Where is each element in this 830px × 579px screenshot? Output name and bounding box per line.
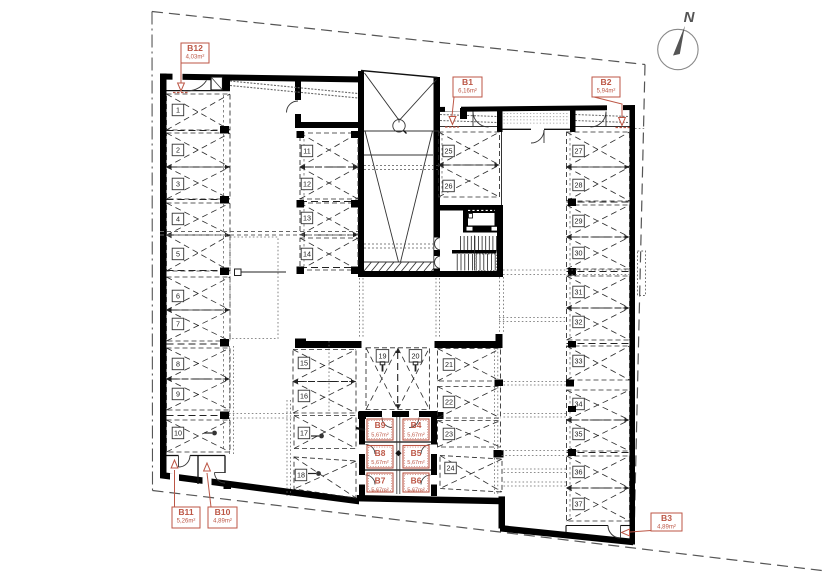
svg-text:3: 3: [176, 180, 180, 189]
svg-text:16: 16: [300, 392, 308, 401]
svg-text:4,89m²: 4,89m²: [657, 525, 676, 531]
svg-text:5,26m²: 5,26m²: [177, 519, 196, 525]
svg-text:15: 15: [300, 359, 308, 368]
svg-text:30: 30: [575, 249, 583, 258]
svg-text:6,16m²: 6,16m²: [458, 89, 477, 95]
svg-text:5,67m²: 5,67m²: [407, 488, 425, 494]
svg-text:21: 21: [445, 360, 453, 369]
svg-text:25: 25: [445, 147, 453, 156]
svg-text:B11: B11: [178, 507, 194, 517]
svg-text:11: 11: [303, 147, 310, 156]
svg-text:37: 37: [575, 500, 583, 509]
svg-text:36: 36: [575, 468, 583, 477]
svg-text:5,67m²: 5,67m²: [371, 433, 389, 439]
svg-text:33: 33: [575, 357, 583, 366]
svg-text:B8: B8: [375, 448, 386, 458]
svg-text:B2: B2: [601, 77, 612, 87]
svg-text:28: 28: [575, 181, 583, 190]
svg-text:B7: B7: [375, 476, 386, 486]
svg-text:B12: B12: [187, 43, 203, 53]
svg-text:27: 27: [575, 147, 583, 156]
svg-text:13: 13: [303, 214, 311, 223]
svg-text:12: 12: [303, 180, 311, 189]
svg-text:B3: B3: [661, 513, 672, 523]
svg-text:B10: B10: [215, 507, 231, 517]
svg-text:26: 26: [445, 182, 453, 191]
svg-text:22: 22: [445, 398, 453, 407]
svg-text:5,67m²: 5,67m²: [371, 460, 389, 466]
svg-text:B9: B9: [375, 420, 386, 430]
svg-text:5,94m²: 5,94m²: [597, 89, 616, 95]
svg-text:4,89m²: 4,89m²: [213, 519, 232, 525]
svg-text:5: 5: [176, 250, 180, 259]
svg-text:20: 20: [412, 351, 420, 360]
svg-text:29: 29: [575, 217, 583, 226]
svg-text:4,03m²: 4,03m²: [186, 55, 205, 61]
svg-text:6: 6: [176, 292, 180, 301]
svg-text:31: 31: [575, 288, 583, 297]
svg-text:10: 10: [174, 429, 182, 438]
svg-text:N: N: [684, 9, 696, 26]
svg-text:17: 17: [300, 429, 308, 438]
svg-text:B5: B5: [411, 448, 422, 458]
svg-text:18: 18: [297, 471, 305, 480]
svg-text:7: 7: [176, 320, 180, 329]
svg-text:14: 14: [303, 250, 311, 259]
svg-text:24: 24: [447, 464, 455, 473]
svg-text:2: 2: [176, 146, 180, 155]
svg-text:5,67m²: 5,67m²: [407, 460, 425, 466]
svg-text:35: 35: [575, 430, 583, 439]
svg-text:23: 23: [445, 430, 453, 439]
svg-text:1: 1: [176, 106, 180, 115]
svg-text:5,67m²: 5,67m²: [407, 433, 425, 439]
svg-text:19: 19: [379, 351, 387, 360]
svg-text:8: 8: [176, 360, 180, 369]
svg-text:32: 32: [575, 318, 583, 327]
svg-text:B1: B1: [462, 77, 473, 87]
svg-text:5,67m²: 5,67m²: [371, 488, 389, 494]
svg-text:B6: B6: [411, 476, 422, 486]
svg-text:4: 4: [176, 215, 180, 224]
svg-text:9: 9: [176, 390, 180, 399]
svg-text:B4: B4: [411, 420, 422, 430]
